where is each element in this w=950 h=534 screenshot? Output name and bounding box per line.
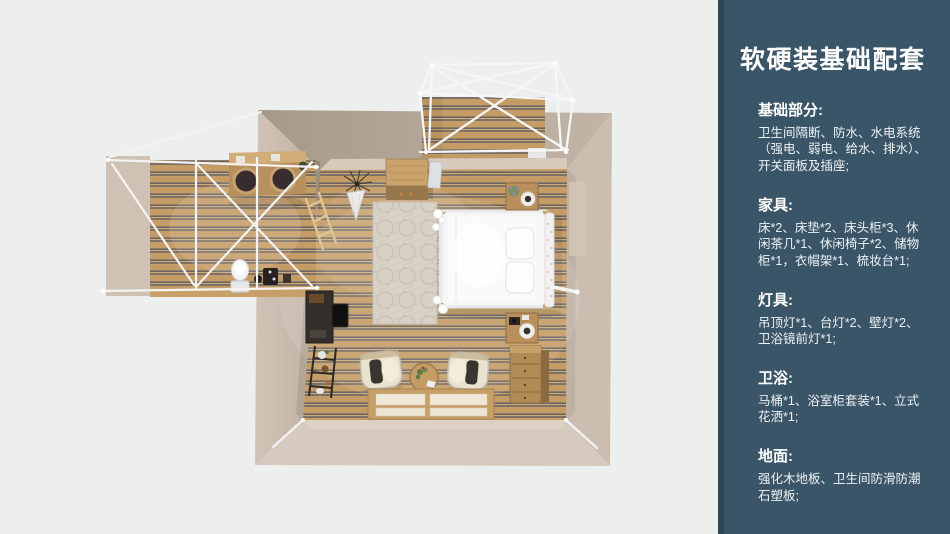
pillow [505, 228, 534, 260]
spec-heading: 家具: [758, 197, 936, 215]
nightstand-top [506, 183, 538, 210]
spec-section-bathroom: 卫浴: 马桶*1、浴室柜套装*1、立式 花洒*1; [740, 370, 936, 426]
leaning-mirror [428, 162, 442, 189]
spec-body: 床*2、床垫*2、床头柜*3、休 闲茶几*1、休闲椅子*2、储物 柜*1，衣帽架… [758, 220, 938, 270]
porch-deck [422, 97, 546, 158]
sink-basin [271, 167, 295, 191]
headboard [545, 213, 554, 307]
spec-body: 马桶*1、浴室柜套装*1、立式 花洒*1; [758, 393, 938, 426]
sink-basin [234, 169, 258, 193]
tatami-platform [368, 389, 494, 419]
spec-heading: 地面: [758, 448, 936, 466]
spec-body: 卫生间隔断、防水、水电系统 （强电、弱电、给水、排水）、 开关面板及插座; [758, 125, 938, 175]
floorplan-render [0, 0, 718, 534]
mirror-light [271, 154, 280, 161]
nightstand-bottom [506, 313, 538, 343]
mirror-light [236, 156, 245, 163]
spec-body: 强化木地板、卫生间防滑防潮 石塑板; [758, 471, 938, 504]
tv [332, 304, 348, 327]
panel-title: 软硬装基础配套 [740, 46, 936, 75]
spec-section-furniture: 家具: 床*2、床垫*2、床头柜*3、休 闲茶几*1、休闲椅子*2、储物 柜*1… [740, 197, 936, 270]
spec-section-basics: 基础部分: 卫生间隔断、防水、水电系统 （强电、弱电、给水、排水）、 开关面板及… [740, 102, 936, 175]
storage-cabinet [386, 159, 433, 200]
bathroom-left-wall [106, 156, 150, 296]
spec-body: 吊顶灯*1、台灯*2、壁灯*2、 卫浴镜前灯*1; [758, 315, 938, 348]
pillow [505, 262, 534, 294]
spec-section-lighting: 灯具: 吊顶灯*1、台灯*2、壁灯*2、 卫浴镜前灯*1; [740, 292, 936, 348]
spec-heading: 基础部分: [758, 102, 936, 120]
desk [306, 291, 333, 343]
dresser [510, 346, 549, 403]
double-bed [433, 210, 563, 320]
slide-canvas: 软硬装基础配套 基础部分: 卫生间隔断、防水、水电系统 （强电、弱电、给水、排水… [0, 0, 950, 534]
wall-panel [569, 182, 585, 256]
spec-section-flooring: 地面: 强化木地板、卫生间防滑防潮 石塑板; [740, 448, 936, 504]
rug [373, 202, 437, 324]
spec-heading: 卫浴: [758, 370, 936, 388]
spec-panel: 软硬装基础配套 基础部分: 卫生间隔断、防水、水电系统 （强电、弱电、给水、排水… [718, 0, 950, 534]
spec-heading: 灯具: [758, 292, 936, 310]
toilet [231, 260, 249, 293]
